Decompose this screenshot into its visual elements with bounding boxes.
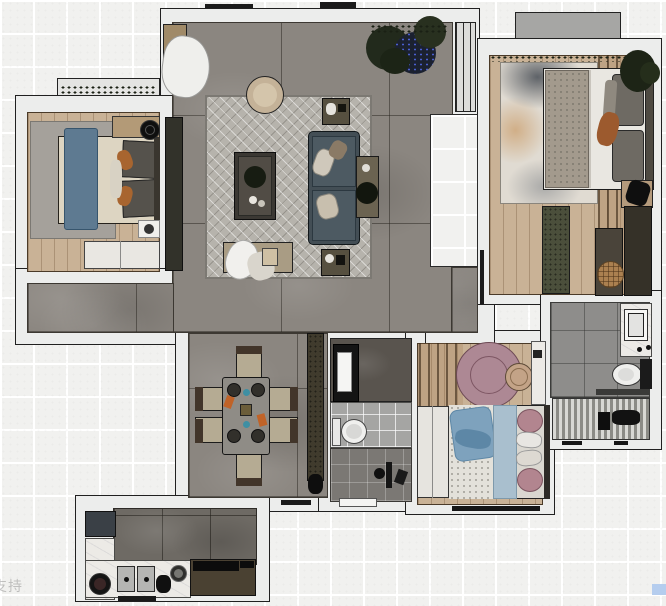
kitchen-plate-center bbox=[174, 569, 183, 578]
left-dresser[interactable] bbox=[84, 241, 160, 269]
kitchen-cabinet-handle bbox=[240, 561, 254, 568]
armchair-cushion bbox=[253, 83, 277, 107]
watermark-blue-mark bbox=[652, 584, 666, 595]
sideboard-decor bbox=[308, 474, 323, 494]
living-room-floor-west bbox=[27, 283, 174, 333]
kitchen-door-threshold[interactable] bbox=[118, 596, 156, 601]
bedroom2-runner bbox=[493, 405, 517, 499]
hanging-plants bbox=[370, 24, 448, 33]
bedroom2-headboard bbox=[544, 405, 550, 499]
kitchen-kettle[interactable] bbox=[156, 575, 171, 593]
left-bed-blue-runner bbox=[64, 128, 98, 230]
place-setting-2 bbox=[251, 383, 265, 397]
watermark-text: 支持 bbox=[0, 576, 23, 596]
master-bench-runner[interactable] bbox=[542, 206, 570, 294]
bedroom2-door-threshold[interactable] bbox=[452, 506, 540, 511]
kitchen-floor bbox=[113, 508, 257, 565]
coffee-table-cup-2 bbox=[258, 200, 265, 207]
left-dresser-divider bbox=[120, 241, 121, 269]
left-tray-dot bbox=[144, 224, 154, 234]
side-table-cup bbox=[362, 164, 370, 172]
bench-book bbox=[262, 248, 278, 266]
master-door-leaf[interactable] bbox=[480, 250, 484, 304]
bath1-mirror bbox=[337, 352, 352, 392]
master-blanket bbox=[545, 70, 589, 188]
end-table-north-decor bbox=[338, 104, 346, 112]
exterior-notch bbox=[430, 114, 478, 267]
bath2-shower-handle bbox=[598, 412, 610, 430]
hallway-floor bbox=[451, 267, 478, 333]
teal-cup-2 bbox=[243, 421, 250, 428]
bath2-cistern bbox=[640, 359, 652, 389]
kitchen-burner-ring bbox=[94, 578, 106, 590]
bedroom2-wardrobe-divider bbox=[432, 406, 433, 498]
bath2-shower-bar bbox=[596, 389, 650, 395]
bedroom2-pouf-ring bbox=[510, 368, 528, 386]
dining-chair-west-1-back bbox=[195, 387, 203, 411]
bay-window-planter bbox=[60, 85, 157, 95]
floor-plan-canvas: 支持 bbox=[0, 0, 666, 606]
bedroom2-pillow-white-1 bbox=[515, 431, 542, 449]
master-woven-pouf[interactable] bbox=[597, 261, 624, 288]
bath1-drain bbox=[374, 468, 385, 479]
place-setting-3 bbox=[227, 429, 241, 443]
kitchen-cooktop[interactable] bbox=[193, 561, 239, 571]
master-wardrobe-2[interactable] bbox=[624, 206, 652, 296]
dining-chair-west-2-back bbox=[195, 419, 203, 443]
bedroom2-pillow-pink-2 bbox=[517, 468, 543, 492]
master-duvet-fold bbox=[589, 70, 591, 188]
left-bed-white-pillow bbox=[110, 160, 122, 198]
kitchen-sink-drain-2 bbox=[144, 577, 149, 582]
bedroom2-rug-ring bbox=[470, 356, 508, 394]
dining-chair-north-back bbox=[236, 346, 262, 354]
bath2-door-mark-2 bbox=[614, 441, 628, 445]
master-pillow-2 bbox=[612, 130, 644, 182]
bath1-shower-column[interactable] bbox=[386, 462, 392, 488]
end-table-south-vase bbox=[325, 254, 334, 263]
dining-chair-east-1-back bbox=[290, 387, 298, 411]
end-table-north-vase bbox=[326, 103, 336, 115]
left-bed-headboard bbox=[154, 138, 160, 222]
bath1-toilet-seat bbox=[346, 424, 362, 439]
bath2-tap-1 bbox=[646, 345, 651, 350]
left-speaker-ring bbox=[145, 125, 155, 135]
teal-cup-1 bbox=[243, 389, 250, 396]
living-window-east[interactable] bbox=[455, 22, 476, 112]
bedroom2-wardrobe[interactable] bbox=[417, 406, 449, 498]
place-setting-4 bbox=[251, 429, 265, 443]
side-table-plant[interactable] bbox=[356, 182, 378, 204]
kitchen-fridge[interactable] bbox=[85, 511, 116, 537]
bath2-sink-basin bbox=[628, 313, 644, 337]
dining-chair-east-2-back bbox=[290, 419, 298, 443]
bedroom2-pillow-pink-1 bbox=[517, 409, 543, 433]
bedroom2-desk-item bbox=[533, 350, 542, 358]
kitchen-sink-drain-1 bbox=[124, 577, 129, 582]
tv-console[interactable] bbox=[165, 117, 183, 271]
master-plant-2 bbox=[640, 62, 660, 84]
dining-door-threshold[interactable] bbox=[281, 500, 311, 505]
table-centerpiece bbox=[240, 404, 252, 416]
coffee-table-plant[interactable] bbox=[244, 166, 266, 188]
dining-chair-south-back bbox=[236, 478, 262, 486]
bath1-door[interactable] bbox=[339, 498, 377, 507]
bath2-tap-2 bbox=[637, 347, 642, 352]
coffee-table-cup-1 bbox=[249, 196, 257, 204]
bath2-shower-head[interactable] bbox=[612, 410, 640, 425]
bath2-toilet-seat bbox=[618, 368, 634, 381]
floor-plant-4 bbox=[380, 48, 410, 74]
bath2-door-mark-1 bbox=[562, 441, 582, 445]
dining-sideboard[interactable] bbox=[307, 333, 324, 481]
end-table-south-decor bbox=[336, 255, 345, 265]
bath1-toilet-tank bbox=[332, 418, 341, 446]
